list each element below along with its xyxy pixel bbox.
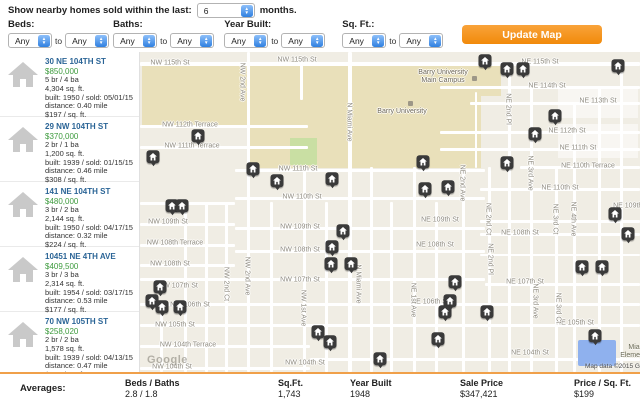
house-photo-placeholder xyxy=(6,57,40,87)
home-marker[interactable] xyxy=(596,260,609,273)
sold-within-row: Show nearby homes sold within the last: … xyxy=(8,3,297,18)
average-value: $199 xyxy=(574,389,631,400)
filter-group-beds: Beds:Any▲▼toAny▲▼ xyxy=(8,19,109,48)
months-select[interactable]: 6 ▲▼ xyxy=(197,3,255,18)
to-label: to xyxy=(389,36,396,46)
street-label: NW 108th St xyxy=(280,247,320,254)
stepper-icon[interactable]: ▲▼ xyxy=(241,5,253,17)
street-label: NE 4th Ave xyxy=(570,202,577,237)
road-vertical xyxy=(555,167,558,372)
filter-bar: Show nearby homes sold within the last: … xyxy=(0,0,640,52)
average-value: $347,421 xyxy=(460,389,503,400)
street-label: NW 104th Terrace xyxy=(160,342,216,349)
road-vertical xyxy=(348,52,352,372)
home-marker[interactable] xyxy=(154,280,167,293)
stepper-icon[interactable]: ▲▼ xyxy=(311,35,323,47)
listing-address-link[interactable]: 141 NE 104TH ST xyxy=(45,187,133,197)
street-label: NW 104th St xyxy=(285,360,325,367)
home-marker[interactable] xyxy=(622,227,635,240)
home-marker[interactable] xyxy=(517,62,530,75)
filter-label-sqft: Sq. Ft.: xyxy=(342,19,443,30)
house-icon xyxy=(7,321,39,348)
listing-card[interactable]: 10451 NE 4TH AVE$409,5003 br / 3 ba2,314… xyxy=(0,247,139,312)
home-marker[interactable] xyxy=(337,224,350,237)
street-label: NE 108th St xyxy=(501,230,539,237)
listing-price-per-sqft: $224 / sq. ft. xyxy=(45,241,133,250)
home-marker[interactable] xyxy=(432,332,445,345)
street-label: NE 110th Terrace xyxy=(561,163,615,170)
home-marker[interactable] xyxy=(192,129,205,142)
listing-address-link[interactable]: 10451 NE 4TH AVE xyxy=(45,252,133,262)
to-label: to xyxy=(160,36,167,46)
home-marker[interactable] xyxy=(374,352,387,365)
average-header: Year Built xyxy=(350,378,392,389)
filter-select-beds-from[interactable]: Any▲▼ xyxy=(8,33,52,48)
listing-card[interactable]: 30 NE 104TH ST$850,0005 br / 4 ba4,304 s… xyxy=(0,52,139,117)
average-col-beds-baths: Beds / Baths2.8 / 1.8 xyxy=(125,378,180,400)
months-suffix-label: months. xyxy=(260,5,297,16)
road-horizontal xyxy=(440,148,640,151)
house-icon xyxy=(7,256,39,283)
street-label: NW 115th St xyxy=(277,57,316,64)
filter-select-baths-from[interactable]: Any▲▼ xyxy=(113,33,157,48)
listing-address-link[interactable]: 70 NW 105TH ST xyxy=(45,317,133,327)
average-header: Sq.Ft. xyxy=(278,378,303,389)
street-label: NW 115th St xyxy=(150,60,189,67)
filter-group-baths: Baths:Any▲▼toAny▲▼ xyxy=(113,19,214,48)
show-homes-label: Show nearby homes sold within the last: xyxy=(8,5,192,16)
house-icon xyxy=(7,61,39,88)
street-label: NE 2nd Pl xyxy=(505,93,512,125)
listing-price-per-sqft: $177 / sq. ft. xyxy=(45,306,133,315)
home-marker[interactable] xyxy=(326,240,339,253)
home-marker[interactable] xyxy=(147,150,160,163)
filter-select-value: Any xyxy=(120,36,135,46)
listing-card[interactable]: 141 NE 104TH ST$480,0003 br / 2 ba2,144 … xyxy=(0,182,139,247)
home-marker[interactable] xyxy=(174,300,187,313)
street-label: NW 108th St xyxy=(150,261,190,268)
home-marker[interactable] xyxy=(549,109,562,122)
street-label: NW 108th Terrace xyxy=(147,240,203,247)
street-label: NW 112th Terrace xyxy=(162,122,218,129)
home-marker[interactable] xyxy=(442,180,455,193)
home-marker[interactable] xyxy=(501,156,514,169)
street-label: NW 109th St xyxy=(148,219,188,226)
road-horizontal xyxy=(480,254,640,256)
street-label: NW 107th St xyxy=(280,277,320,284)
street-label: NE 113th St xyxy=(579,98,616,105)
street-label: NW 2nd Ave xyxy=(244,257,251,296)
campus-poi-label: Barry University xyxy=(377,108,426,116)
house-icon xyxy=(7,191,39,218)
street-label: NW 1st Ave xyxy=(300,290,307,326)
listings-panel: 30 NE 104TH ST$850,0005 br / 4 ba4,304 s… xyxy=(0,52,140,372)
average-col-sale-price: Sale Price$347,421 xyxy=(460,378,503,400)
street-label: NE 3rd Ct xyxy=(552,204,559,235)
street-label: NE 3rd Ave xyxy=(532,283,539,318)
road-vertical xyxy=(573,102,576,372)
street-label: NE 108th St xyxy=(416,242,454,249)
house-icon xyxy=(7,126,39,153)
listing-address-link[interactable]: 29 NW 104TH ST xyxy=(45,122,133,132)
road-horizontal xyxy=(235,169,485,172)
filter-select-sqft-to[interactable]: Any▲▼ xyxy=(399,33,443,48)
home-marker[interactable] xyxy=(325,257,338,270)
filter-select-value: Any xyxy=(288,36,303,46)
road-vertical xyxy=(270,202,273,372)
street-label: NE 3rd Ave xyxy=(527,155,534,190)
filter-group-yearbuilt: Year Built:Any▲▼toAny▲▼ xyxy=(224,19,325,48)
listing-price-per-sqft: $308 / sq. ft. xyxy=(45,176,133,185)
listing-price-per-sqft: $197 / sq. ft. xyxy=(45,111,133,120)
home-marker[interactable] xyxy=(176,199,189,212)
home-marker[interactable] xyxy=(312,325,325,338)
stepper-icon[interactable]: ▲▼ xyxy=(254,35,266,47)
home-marker[interactable] xyxy=(326,172,339,185)
filter-select-value: Any xyxy=(72,36,87,46)
map-canvas[interactable]: NW 115th StNW 115th StNE 115th StNE 114t… xyxy=(140,52,640,372)
home-marker[interactable] xyxy=(481,305,494,318)
filter-select-baths-to[interactable]: Any▲▼ xyxy=(170,33,214,48)
street-label: NE 1st Ave xyxy=(410,283,417,318)
campus-area xyxy=(481,66,501,96)
street-label: NE 110th St xyxy=(541,185,578,192)
poi-dot-icon xyxy=(472,76,477,81)
road-horizontal xyxy=(140,62,640,66)
average-value: 1948 xyxy=(350,389,392,400)
averages-label: Averages: xyxy=(20,383,66,394)
home-marker[interactable] xyxy=(479,54,492,67)
road-vertical xyxy=(370,167,373,372)
street-label: N Miami Ave xyxy=(355,264,362,303)
home-marker[interactable] xyxy=(417,155,430,168)
filter-select-beds-to[interactable]: Any▲▼ xyxy=(65,33,109,48)
poi-dot-icon xyxy=(408,101,413,106)
street-label: NW 105th St xyxy=(155,322,195,329)
filter-label-yearbuilt: Year Built: xyxy=(224,19,325,30)
street-label: NE 3rd Ct xyxy=(555,293,562,324)
stepper-icon[interactable]: ▲▼ xyxy=(429,35,441,47)
home-marker[interactable] xyxy=(419,182,432,195)
home-marker[interactable] xyxy=(529,127,542,140)
listing-card[interactable]: 29 NW 104TH ST$370,0002 br / 1 ba1,200 s… xyxy=(0,117,139,182)
street-label: NE 111th St xyxy=(560,145,597,152)
filter-select-value: Any xyxy=(231,36,246,46)
street-label: NE 104th St xyxy=(511,350,549,357)
months-select-value: 6 xyxy=(204,6,209,16)
street-label: NE 2nd Ave xyxy=(459,165,466,202)
listing-address-link[interactable]: 30 NE 104TH ST xyxy=(45,57,133,67)
street-label: NE 105th St xyxy=(556,320,594,327)
home-marker[interactable] xyxy=(612,59,625,72)
street-label: N Miami Ave xyxy=(346,102,353,141)
home-marker[interactable] xyxy=(576,260,589,273)
house-photo-placeholder xyxy=(6,252,40,282)
map-attribution: Map data ©2015 G xyxy=(585,363,640,370)
road-vertical xyxy=(300,65,303,100)
road-vertical xyxy=(413,167,416,372)
google-logo[interactable]: Google xyxy=(147,354,188,366)
filter-label-beds: Beds: xyxy=(8,19,109,30)
street-label: NW 111th Terrace xyxy=(164,143,219,150)
filter-select-value: Any xyxy=(406,36,421,46)
road-vertical xyxy=(390,202,393,372)
street-label: NE 109th St xyxy=(421,217,459,224)
filter-label-baths: Baths: xyxy=(113,19,214,30)
campus-area xyxy=(142,66,247,125)
average-value: 1,743 xyxy=(278,389,303,400)
street-label: NW 2nd Ct xyxy=(223,267,230,301)
house-photo-placeholder xyxy=(6,187,40,217)
filter-groups: Beds:Any▲▼toAny▲▼Baths:Any▲▼toAny▲▼Year … xyxy=(8,19,447,48)
road-vertical xyxy=(475,92,477,168)
to-label: to xyxy=(55,36,62,46)
filter-group-sqft: Sq. Ft.:Any▲▼toAny▲▼ xyxy=(342,19,443,48)
filter-select-value: Any xyxy=(15,36,30,46)
filter-select-yearbuilt-to[interactable]: Any▲▼ xyxy=(281,33,325,48)
home-marker[interactable] xyxy=(247,162,260,175)
street-label: NW 109th St xyxy=(280,224,320,231)
filter-select-value: Any xyxy=(177,36,192,46)
house-photo-placeholder xyxy=(6,317,40,347)
average-header: Price / Sq. Ft. xyxy=(574,378,631,389)
filter-select-sqft-from[interactable]: Any▲▼ xyxy=(342,33,386,48)
street-label: NE 2nd Pl xyxy=(487,243,494,275)
home-marker[interactable] xyxy=(156,300,169,313)
home-marker[interactable] xyxy=(439,305,452,318)
stepper-icon[interactable]: ▲▼ xyxy=(143,35,155,47)
to-label: to xyxy=(271,36,278,46)
park-area xyxy=(290,138,317,165)
street-label: NE 114th St xyxy=(528,83,565,90)
update-map-button[interactable]: Update Map xyxy=(462,25,602,44)
home-marker[interactable] xyxy=(324,335,337,348)
home-marker[interactable] xyxy=(449,275,462,288)
road-horizontal xyxy=(235,197,485,200)
average-header: Sale Price xyxy=(460,378,503,389)
average-header: Beds / Baths xyxy=(125,378,180,389)
campus-poi-label: Barry UniversityMain Campus xyxy=(418,69,467,85)
average-col-sq-ft: Sq.Ft.1,743 xyxy=(278,378,303,400)
average-value: 2.8 / 1.8 xyxy=(125,389,180,400)
house-photo-placeholder xyxy=(6,122,40,152)
stepper-icon[interactable]: ▲▼ xyxy=(200,35,212,47)
street-label: NE 112th St xyxy=(548,128,585,135)
street-label: NW 111th St xyxy=(279,166,318,173)
home-marker[interactable] xyxy=(271,174,284,187)
average-col-year-built: Year Built1948 xyxy=(350,378,392,400)
street-label: NW 110th St xyxy=(282,194,321,201)
stepper-icon[interactable]: ▲▼ xyxy=(95,35,107,47)
listing-card[interactable]: 70 NW 105TH ST$258,0202 br / 2 ba1,578 s… xyxy=(0,312,139,377)
average-col-price-sq-ft: Price / Sq. Ft.$199 xyxy=(574,378,631,400)
stepper-icon[interactable]: ▲▼ xyxy=(38,35,50,47)
street-label: NE 2nd Ct xyxy=(485,203,492,235)
stepper-icon[interactable]: ▲▼ xyxy=(372,35,384,47)
filter-select-yearbuilt-from[interactable]: Any▲▼ xyxy=(224,33,268,48)
home-marker[interactable] xyxy=(501,62,514,75)
street-label: NW 2nd Ave xyxy=(239,63,246,102)
road-vertical xyxy=(247,52,250,372)
filter-select-value: Any xyxy=(349,36,364,46)
home-marker[interactable] xyxy=(345,257,358,270)
home-marker[interactable] xyxy=(589,329,602,342)
school-poi-label: Mia Element. xyxy=(617,344,640,360)
averages-bar: Averages: Beds / Baths2.8 / 1.8Sq.Ft.1,7… xyxy=(0,372,640,403)
home-marker[interactable] xyxy=(609,207,622,220)
